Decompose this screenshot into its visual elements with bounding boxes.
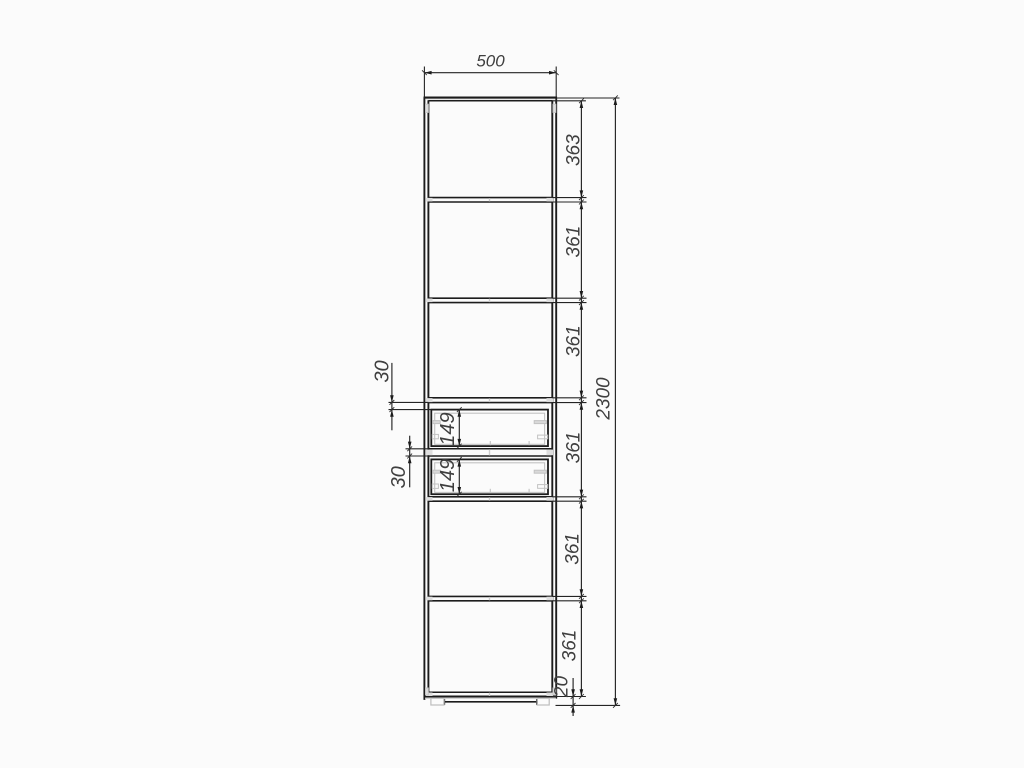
svg-text:500: 500 <box>476 52 505 71</box>
svg-text:149: 149 <box>437 412 459 445</box>
svg-text:2300: 2300 <box>594 377 615 421</box>
svg-text:361: 361 <box>564 325 585 357</box>
svg-text:20: 20 <box>552 676 573 699</box>
svg-text:361: 361 <box>560 630 581 662</box>
svg-text:30: 30 <box>371 360 393 382</box>
svg-text:30: 30 <box>388 466 410 488</box>
svg-text:363: 363 <box>564 134 585 166</box>
svg-text:361: 361 <box>564 226 585 258</box>
svg-text:361: 361 <box>564 432 585 464</box>
svg-text:149: 149 <box>437 459 459 492</box>
svg-text:361: 361 <box>563 533 584 565</box>
